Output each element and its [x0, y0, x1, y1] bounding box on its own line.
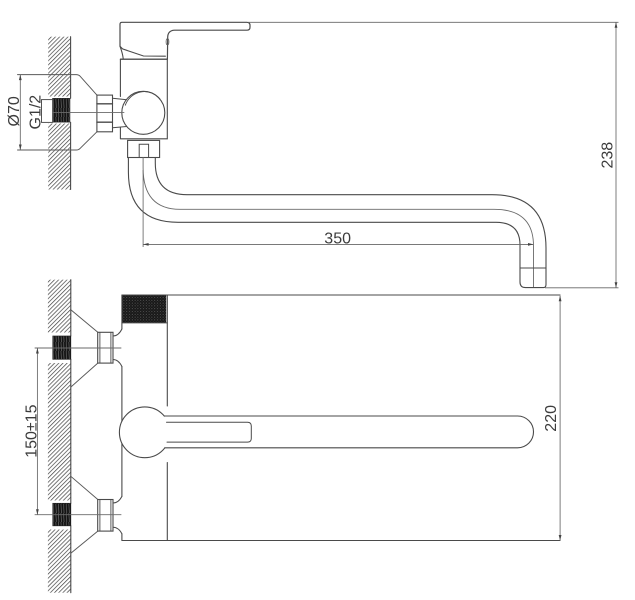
svg-text:238: 238 — [600, 142, 617, 169]
svg-text:G1/2: G1/2 — [27, 95, 44, 130]
svg-text:150±15: 150±15 — [24, 404, 41, 457]
svg-text:Ø70: Ø70 — [6, 96, 23, 126]
svg-text:350: 350 — [324, 230, 351, 247]
svg-text:220: 220 — [543, 405, 560, 432]
